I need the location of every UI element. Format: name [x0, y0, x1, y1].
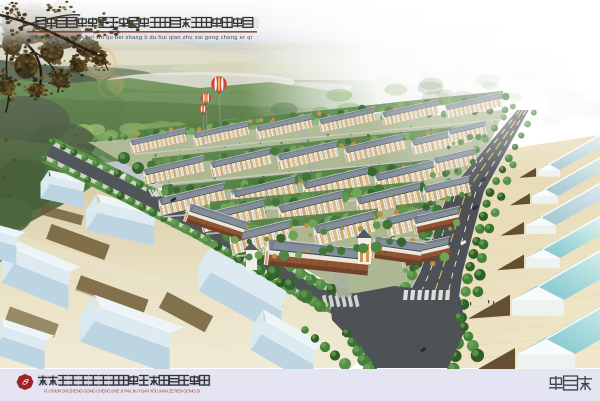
svg-text:FU SHUN SHI ZHENG GONG CHENG S: FU SHUN SHI ZHENG GONG CHENG SHE JI YAN … — [44, 389, 200, 394]
svg-text:shen yang shi shen bei xin qu: shen yang shi shen bei xin qu bei shang … — [29, 35, 252, 41]
